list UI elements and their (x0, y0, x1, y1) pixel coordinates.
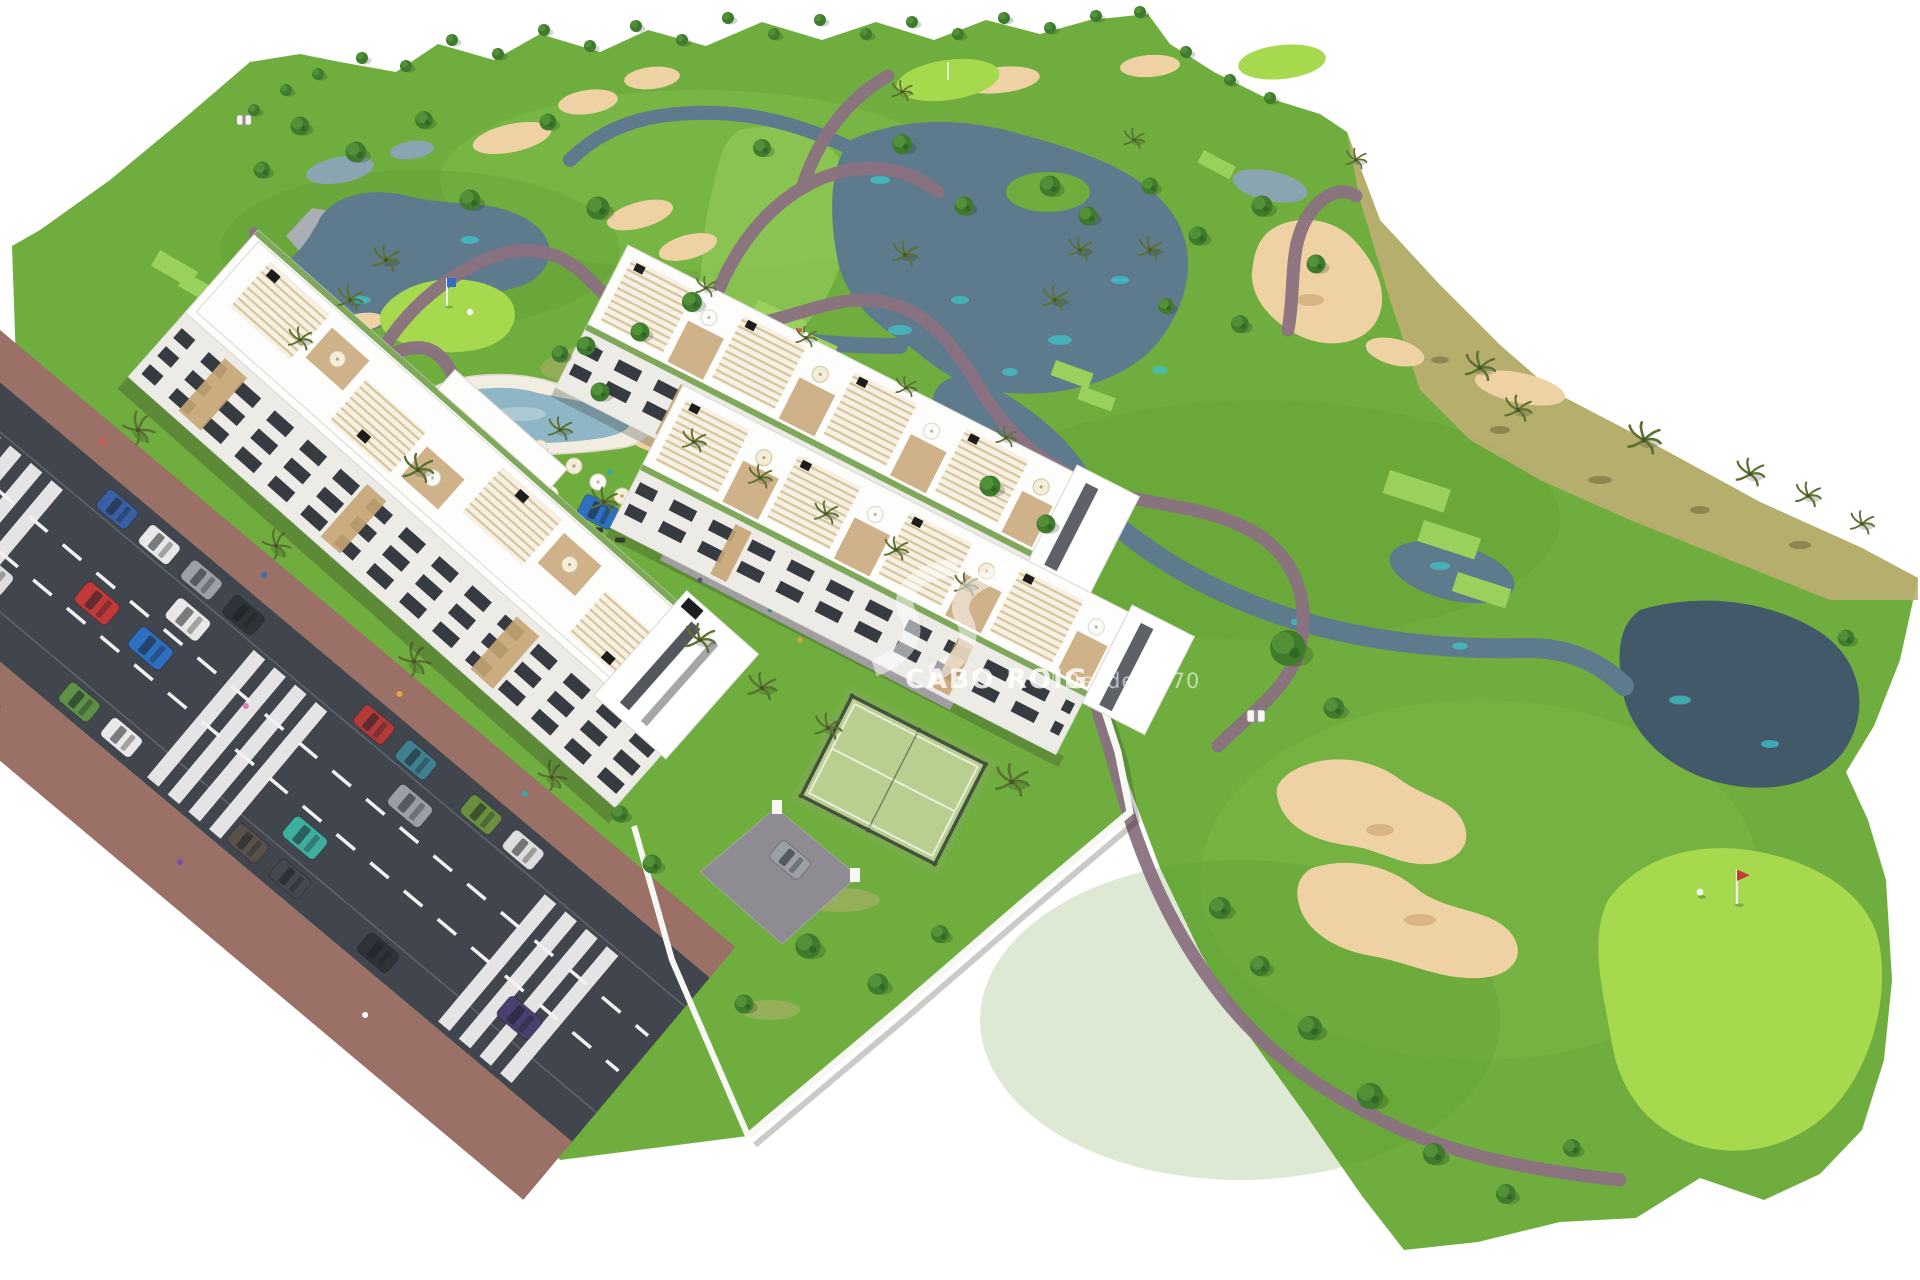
parasol-icon (566, 458, 582, 474)
putting-green-topright (1236, 40, 1327, 83)
person-icon (798, 638, 803, 643)
watermark-separator: | (1048, 663, 1058, 698)
palm-icon (1796, 482, 1821, 506)
person-icon (798, 328, 802, 332)
tree-icon (722, 12, 738, 25)
masterplan-render: CABO ROIG | Desde 1970 (0, 0, 1920, 1280)
tree-icon (1090, 10, 1106, 23)
golf-cart-icon (1247, 710, 1265, 722)
palm-icon (1737, 459, 1765, 486)
tree-icon (630, 20, 646, 33)
tree-icon (906, 16, 922, 29)
tree-icon (676, 34, 692, 47)
aerial-render-canvas: CABO ROIG | Desde 1970 (0, 0, 1920, 1280)
tree-icon (446, 34, 462, 47)
tree-icon (1224, 74, 1240, 87)
tree-icon (492, 48, 508, 61)
watermark-brand: CABO ROIG (905, 664, 1088, 695)
tree-icon (584, 40, 600, 53)
tree-icon (814, 14, 830, 27)
tree-icon (1264, 92, 1280, 105)
tree-icon (356, 52, 372, 65)
watermark-tagline: Desde 1970 (1064, 669, 1200, 693)
parasol-icon (590, 474, 606, 490)
palm-icon (1851, 511, 1874, 533)
tree-icon (1180, 46, 1196, 59)
tree-icon (538, 24, 554, 37)
tree-icon (1134, 6, 1150, 19)
tree-icon (998, 12, 1014, 25)
golf-cart-icon (237, 115, 251, 125)
golfer-west (467, 309, 473, 315)
person-icon (804, 332, 808, 336)
tree-icon (1044, 22, 1060, 35)
person-icon (607, 469, 613, 475)
